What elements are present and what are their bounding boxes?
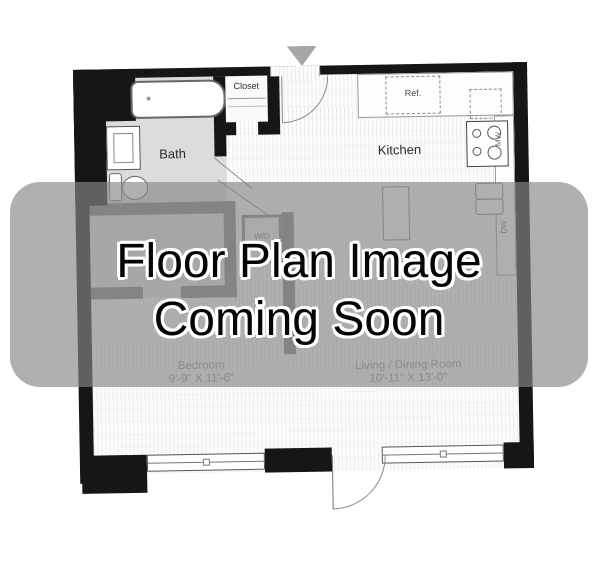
entry-arrow-icon xyxy=(287,46,317,67)
corner-cabinet xyxy=(469,88,502,119)
wall xyxy=(218,122,236,135)
sink-basin xyxy=(113,133,134,163)
tub-drain xyxy=(147,97,151,101)
floor-plan-image: W/D Bath Closet Kitchen Ref. MW DW Close… xyxy=(0,0,600,571)
wall xyxy=(504,442,534,469)
microwave-label: MW xyxy=(494,127,503,151)
window-mullion xyxy=(203,459,210,466)
overlay-line-1: Floor Plan Image xyxy=(10,233,588,291)
wall xyxy=(258,121,280,134)
window xyxy=(382,445,504,464)
bath-label: Bath xyxy=(136,146,208,162)
refrigerator-label: Ref. xyxy=(385,88,440,99)
bathtub xyxy=(130,79,226,119)
window-mullion xyxy=(440,450,447,457)
overlay-text: Floor Plan Image Coming Soon xyxy=(10,233,588,349)
kitchen-label: Kitchen xyxy=(359,142,439,158)
closet-label: Closet xyxy=(223,81,269,92)
wall xyxy=(82,455,148,494)
window xyxy=(147,453,265,472)
door-arc xyxy=(332,455,387,510)
coming-soon-overlay: Floor Plan Image Coming Soon xyxy=(10,182,588,387)
overlay-line-2: Coming Soon xyxy=(10,291,588,349)
wall xyxy=(265,448,332,473)
